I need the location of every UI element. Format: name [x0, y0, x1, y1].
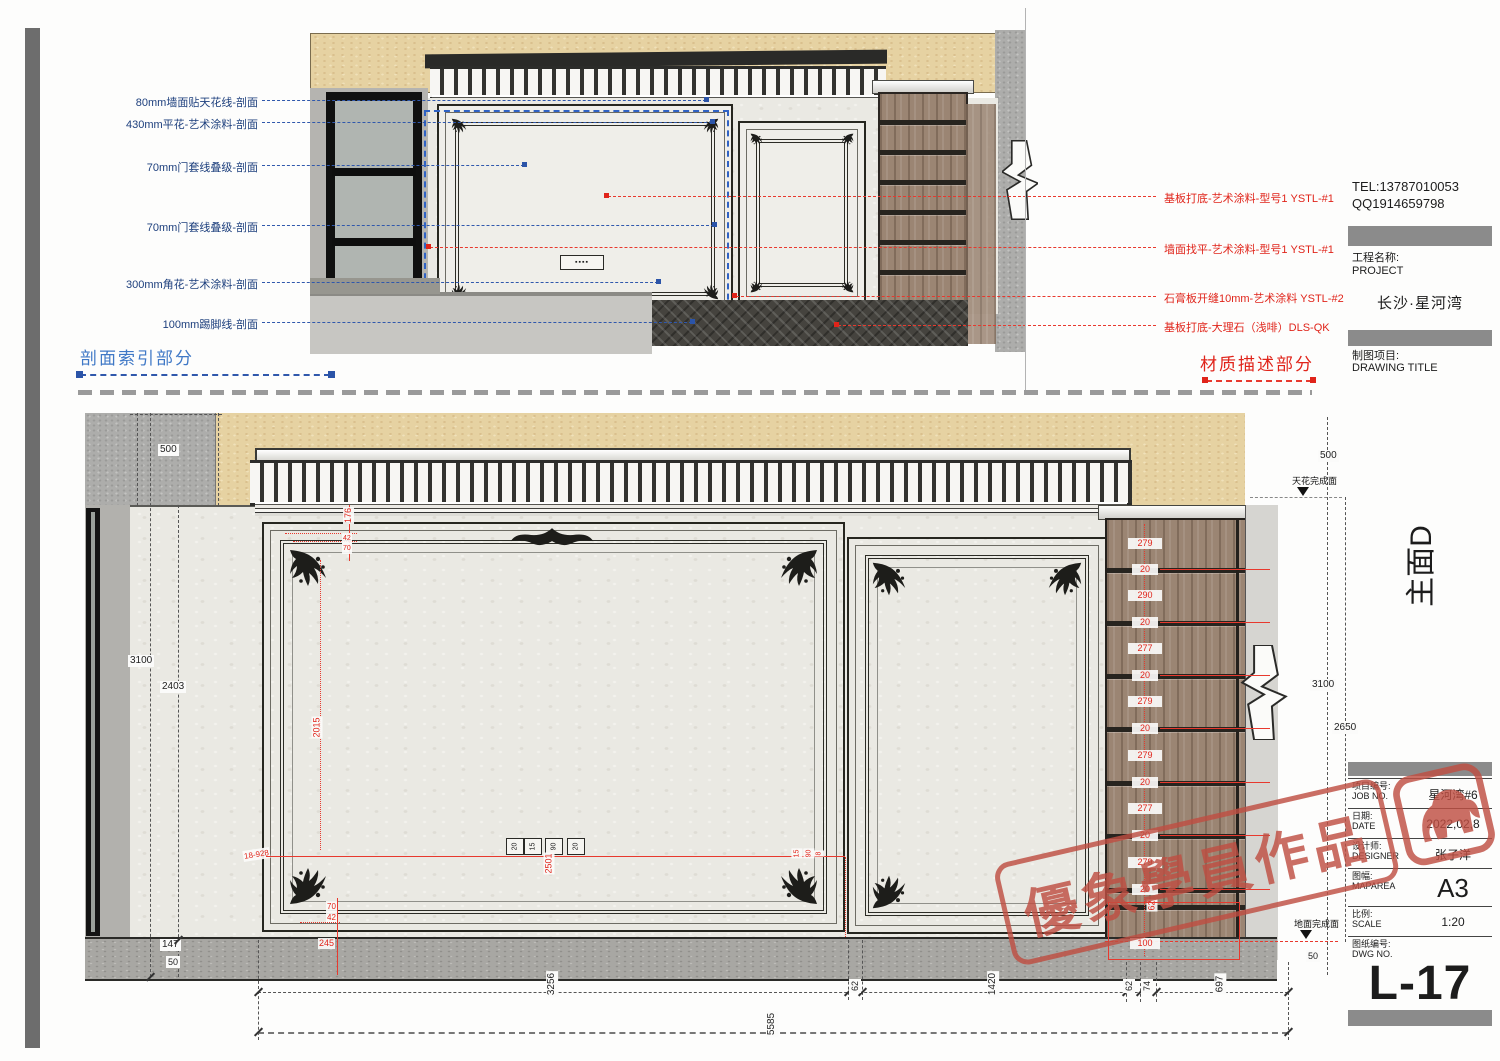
leader-line — [736, 296, 1156, 297]
corner-ornament — [750, 280, 763, 293]
wall-panel-2-3d — [738, 121, 866, 305]
cab-dim: 20 — [1132, 777, 1158, 788]
material-label: 墙面找平-艺术涂料-型号1 YSTL-#1 — [1164, 241, 1334, 257]
dim-2403-left: 2403 — [160, 681, 186, 693]
dim-50-right: 50 — [1306, 950, 1320, 962]
cab-dim: 277 — [1128, 643, 1162, 654]
titleblock-bar — [1348, 330, 1492, 346]
project-name: 长沙·星河湾 — [1348, 292, 1492, 313]
corner-ornament — [1047, 561, 1083, 597]
section-separator — [78, 390, 1312, 395]
cab-dim: 279 — [1128, 750, 1162, 761]
red-line — [320, 560, 321, 850]
red-dim-70: 70 — [342, 543, 352, 554]
dim-697: 697 — [1214, 974, 1226, 995]
side-panel-3d — [966, 104, 996, 344]
red-dim-70b: 70 — [326, 901, 337, 912]
selection-rect — [424, 110, 729, 320]
cab-dim: 20 — [1132, 617, 1158, 628]
corner-ornament — [841, 133, 854, 146]
cab-dim: 20 — [1132, 723, 1158, 734]
corner-ornament — [288, 866, 328, 906]
dim-50-left: 50 — [166, 956, 180, 968]
guide-line — [1156, 962, 1157, 1002]
window-mullion — [332, 238, 416, 246]
leader-line — [262, 282, 658, 283]
scale-value: 1:20 — [1414, 907, 1492, 937]
red-dim-8: 8 — [813, 851, 824, 857]
callout-label: 70mm门套线叠级-剖面 — [58, 219, 258, 235]
material-label: 基板打底-艺术涂料-型号1 YSTL-#1 — [1164, 190, 1334, 206]
wall-break-symbol — [1240, 645, 1288, 740]
dim-1420: 1420 — [987, 971, 999, 997]
drawing-sheet: ▪▪▪▪ 80mm墙面贴天花线-剖面 430mm平花-艺术涂料-剖面 70mm门… — [0, 0, 1500, 1061]
corner-ornament — [841, 280, 854, 293]
section-view: ▪▪▪▪ 80mm墙面贴天花线-剖面 430mm平花-艺术涂料-剖面 70mm门… — [0, 0, 1500, 400]
corner-ornament — [779, 548, 819, 588]
cab-dim: 20 — [1132, 670, 1158, 681]
drawing-label-en: DRAWING TITLE — [1352, 362, 1438, 375]
wall-break-symbol — [1002, 140, 1038, 220]
window-jamb — [86, 508, 100, 936]
window-mullion — [332, 168, 416, 176]
elevation-name: 主面D — [1396, 506, 1436, 626]
dim-62b: 62 — [1123, 979, 1135, 993]
sheet-number: L-17 — [1348, 956, 1492, 1011]
corner-ornament — [871, 874, 907, 910]
level-line — [1250, 497, 1342, 498]
callout-label: 300mm角花-艺术涂料-剖面 — [58, 276, 258, 292]
view-divider — [1025, 8, 1026, 390]
leader-line — [262, 122, 712, 123]
qq-number: QQ1914659798 — [1352, 197, 1445, 210]
plinth-3d — [310, 278, 440, 294]
level-marker — [1300, 930, 1312, 939]
cab-dim: 279 — [1128, 538, 1162, 549]
tel-number: TEL:13787010053 — [1352, 180, 1459, 193]
dim-line — [130, 414, 222, 415]
leader-line — [262, 225, 714, 226]
caption-underline — [80, 374, 330, 376]
callout-label: 70mm门套线叠级-剖面 — [58, 159, 258, 175]
tiny-label-3d: ▪▪▪▪ — [560, 255, 604, 270]
dim-line — [150, 413, 151, 977]
dim-line — [137, 413, 138, 506]
tag-box: 15 — [524, 838, 542, 855]
titleblock-bar — [1348, 226, 1492, 246]
project-label-en: PROJECT — [1352, 265, 1403, 278]
red-dim-15: 15 — [791, 849, 802, 859]
tag-box: 20 — [567, 838, 585, 855]
section-index-caption: 剖面索引部分 — [80, 344, 194, 369]
corner-ornament — [779, 866, 819, 906]
cab-dim: 20 — [1132, 564, 1158, 575]
dim-line — [218, 413, 219, 506]
dentil-band — [250, 460, 1132, 506]
sub-molding — [255, 502, 1127, 516]
red-dim-245: 245 — [318, 938, 335, 949]
leader-line — [262, 165, 524, 166]
red-line — [337, 898, 338, 975]
callout-label: 80mm墙面贴天花线-剖面 — [58, 94, 258, 110]
dim-3256: 3256 — [546, 971, 558, 997]
cab-dim: 290 — [1128, 590, 1162, 601]
callout-label: 430mm平花-艺术涂料-剖面 — [58, 116, 258, 132]
dim-5585: 5585 — [766, 1011, 778, 1037]
top-center-ornament — [504, 526, 600, 552]
red-dim-2501: 2501 — [544, 852, 555, 874]
level-marker — [1297, 487, 1309, 496]
red-line — [845, 857, 846, 937]
titleblock-row: 比例:SCALE 1:20 — [1348, 906, 1492, 937]
leader-line — [262, 322, 692, 323]
leader-line — [838, 325, 1156, 326]
leader-line — [430, 247, 1156, 248]
dim-3100-left: 3100 — [128, 655, 154, 667]
material-label: 基板打底-大理石（浅啡）DLS-QK — [1164, 319, 1330, 335]
dim-line — [178, 505, 179, 977]
titleblock-bar — [1348, 1010, 1492, 1026]
dim-2650-right: 2650 — [1332, 722, 1358, 734]
dim-74: 74 — [1141, 979, 1153, 993]
dim-500-left: 500 — [158, 444, 179, 456]
callout-label: 100mm踢脚线-剖面 — [58, 316, 258, 332]
leader-line — [608, 196, 1156, 197]
red-dim-176: 176 — [343, 507, 354, 524]
caption-underline — [1206, 380, 1312, 382]
cab-dim: 279 — [1128, 696, 1162, 707]
tag-box: 20 — [506, 838, 524, 855]
red-dim-2015: 2015 — [312, 716, 323, 738]
dim-500-right: 500 — [1318, 450, 1339, 462]
window-glass — [335, 101, 413, 301]
corner-ornament — [288, 548, 328, 588]
corner-ornament — [750, 133, 763, 146]
light-floor-3d — [310, 292, 652, 354]
leader-line — [262, 100, 706, 101]
project-label-cn: 工程名称: — [1352, 252, 1399, 265]
material-caption: 材质描述部分 — [1200, 350, 1314, 375]
dim-62: 62 — [849, 979, 861, 993]
ceiling-level-label: 天花完成面 — [1292, 474, 1337, 487]
material-label: 石膏板开缝10mm-艺术涂料 YSTL-#2 — [1164, 290, 1344, 306]
corner-ornament — [871, 561, 907, 597]
red-line — [266, 856, 845, 857]
dim-3100-right: 3100 — [1310, 679, 1336, 691]
